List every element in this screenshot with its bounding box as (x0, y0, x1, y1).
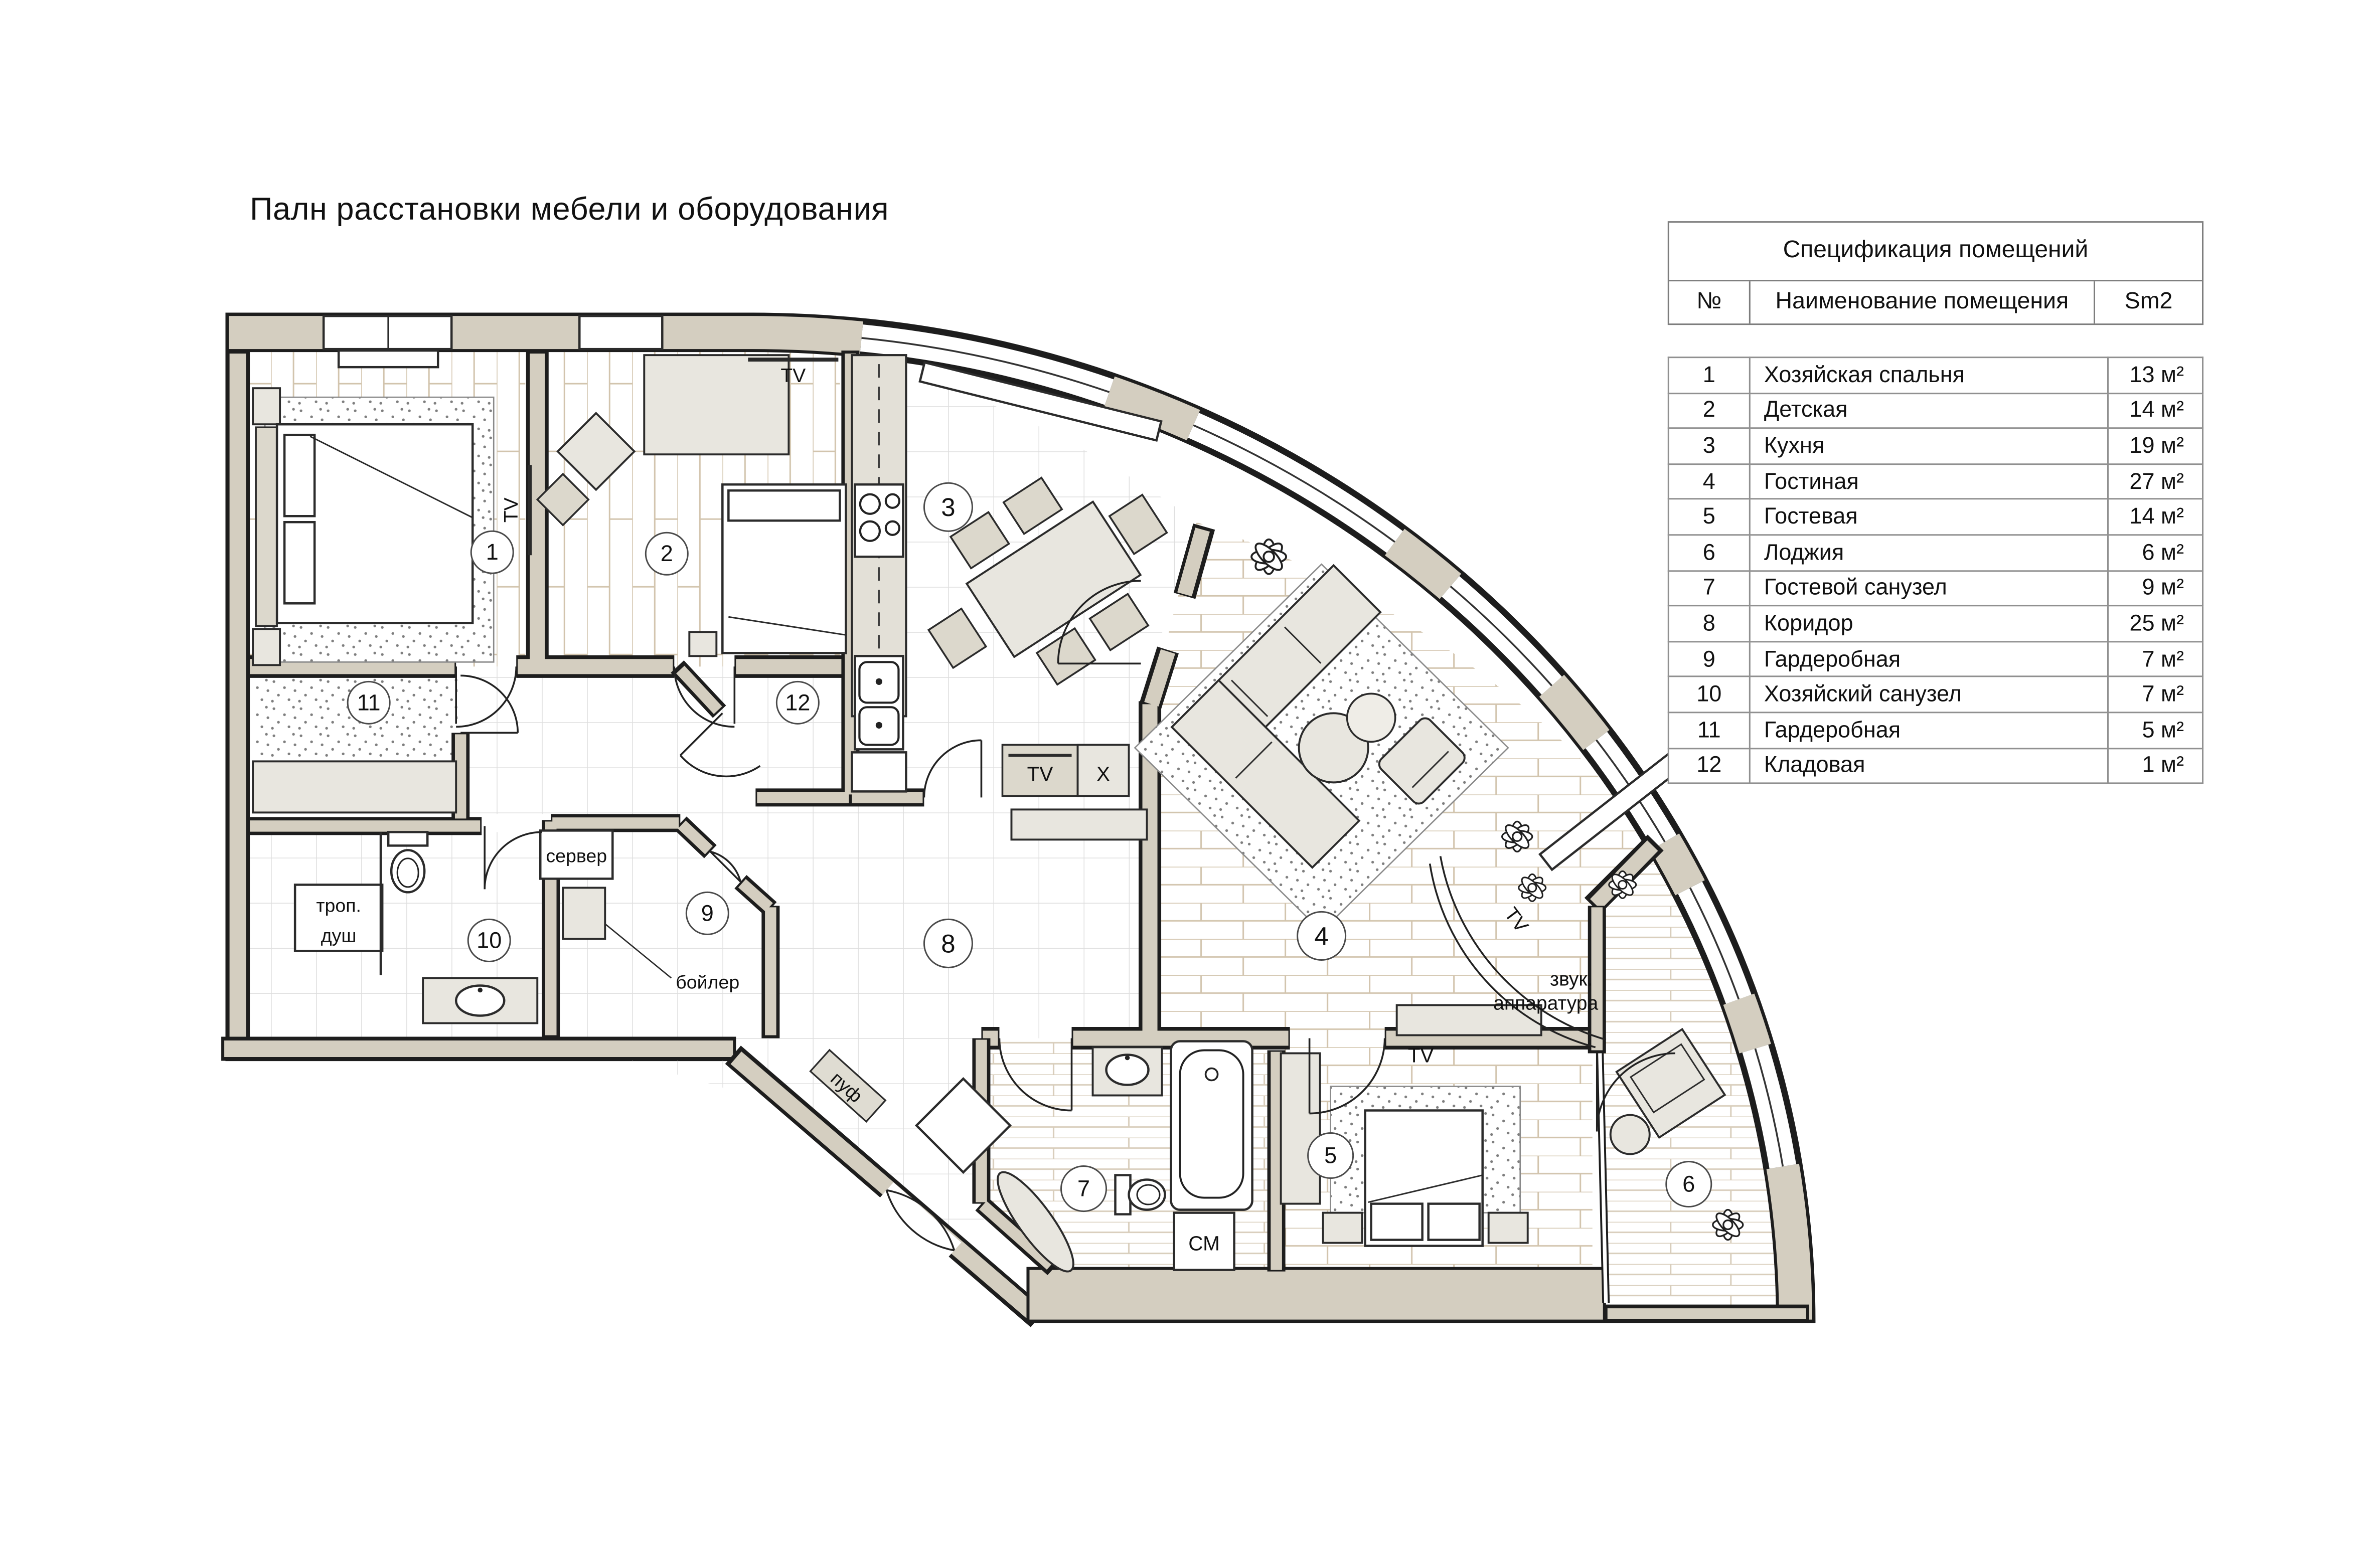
table-cell: Гардеробная (1750, 641, 2108, 677)
room-number-9: 9 (701, 900, 714, 926)
room-number-12: 12 (785, 689, 810, 715)
table-cell: Гардеробная (1750, 713, 2108, 748)
boiler-appliance (563, 888, 605, 939)
table-cell: Лоджия (1750, 535, 2108, 571)
table-row: 1Хозяйская спальня13 м² (1668, 358, 2202, 393)
room-number-6: 6 (1682, 1171, 1695, 1197)
table-cell: 11 (1668, 713, 1750, 748)
table-cell: 5 (1668, 499, 1750, 535)
table-row: 11Гардеробная5 м² (1668, 713, 2202, 748)
side-table (1611, 1115, 1650, 1154)
bathtub-icon (1171, 1041, 1252, 1209)
table-cell: 5 м² (2108, 713, 2202, 748)
room-number-8: 8 (941, 929, 955, 958)
table-row: 2Детская14 м² (1668, 393, 2202, 428)
pillow (728, 490, 840, 520)
label-tv-room5: TV (1408, 1043, 1434, 1067)
table-row: 5Гостевая14 м² (1668, 499, 2202, 535)
window-room2 (579, 316, 662, 349)
room-number-3: 3 (941, 493, 955, 521)
table-cell: 27 м² (2108, 464, 2202, 499)
table-cell: 10 (1668, 677, 1750, 713)
kitchen-sink-icon (855, 656, 903, 749)
plant-icon (1502, 821, 1532, 851)
bed-headboard (256, 427, 277, 626)
bed (722, 484, 846, 653)
room-number-5: 5 (1324, 1143, 1337, 1168)
table-cell: 25 м² (2108, 606, 2202, 641)
wardrobe (644, 355, 788, 454)
double-bed (1365, 1111, 1483, 1246)
label-tv-room1-icon: TV (501, 497, 522, 522)
plant-icon (1519, 874, 1546, 901)
spec-col-area: Sm2 (2095, 281, 2202, 323)
table-cell: 6 м² (2108, 535, 2202, 571)
table-cell: 8 (1668, 606, 1750, 641)
table-row: 7Гостевой санузел9 м² (1668, 570, 2202, 606)
table-cell: Детская (1750, 393, 2108, 428)
nightstand (689, 632, 716, 656)
plant-icon (1251, 540, 1286, 574)
vanity-sink-icon (423, 978, 537, 1023)
table-cell: 1 м² (2108, 748, 2202, 783)
radiator (339, 351, 438, 367)
washing-machine-icon: СМ (1174, 1213, 1234, 1270)
coffee-table (1347, 693, 1395, 742)
table-row: 6Лоджия6 м² (1668, 535, 2202, 571)
cabinet (253, 388, 280, 424)
room-number-1: 1 (486, 539, 499, 565)
label-washer: СМ (1188, 1232, 1220, 1255)
room-1-master-bedroom (253, 351, 494, 665)
table-cell: 7 м² (2108, 641, 2202, 677)
pillow (284, 435, 314, 516)
table-cell: 3 (1668, 428, 1750, 464)
cabinet (852, 752, 906, 791)
spec-table-title: Спецификация помещений (1669, 223, 2202, 280)
table-cell: Кухня (1750, 428, 2108, 464)
page: Палн расстановки мебели и оборудования (0, 0, 2366, 1568)
spec-col-num: № (1669, 281, 1749, 323)
label-server: сервер (546, 845, 607, 866)
room-number-10: 10 (477, 927, 502, 953)
label-shower-2: душ (321, 925, 357, 946)
table-cell: Гостевой санузел (1750, 570, 2108, 606)
table-row: 4Гостиная27 м² (1668, 464, 2202, 499)
table-row: 12Кладовая1 м² (1668, 748, 2202, 783)
table-row: 10Хозяйский санузел7 м² (1668, 677, 2202, 713)
room-number-7: 7 (1077, 1176, 1090, 1201)
label-boiler: бойлер (676, 971, 739, 992)
table-cell: Коридор (1750, 606, 2108, 641)
table-cell: Гостевая (1750, 499, 2108, 535)
nightstand (1489, 1213, 1528, 1243)
table-cell: 19 м² (2108, 428, 2202, 464)
double-bed (277, 424, 472, 623)
spec-table-header: Спецификация помещений № Наименование по… (1668, 221, 2203, 325)
table-cell: 1 (1668, 358, 1750, 393)
vanity-sink-icon (1093, 1047, 1162, 1095)
toilet-icon (388, 832, 427, 892)
table-cell: 12 (1668, 748, 1750, 783)
room-number-4: 4 (1314, 922, 1328, 950)
label-x-cabinet: X (1096, 762, 1110, 785)
wardrobe (1281, 1053, 1320, 1203)
bottom-wall (1028, 1269, 1604, 1321)
table-cell: Хозяйская спальня (1750, 358, 2108, 393)
table-cell: Хозяйский санузел (1750, 677, 2108, 713)
table-cell: 2 (1668, 393, 1750, 428)
table-row: 9Гардеробная7 м² (1668, 641, 2202, 677)
nightstand (1323, 1213, 1362, 1243)
cabinet (253, 629, 280, 665)
label-tv-room2-icon: TV (780, 365, 806, 387)
label-shower-1: троп. (316, 895, 361, 916)
table-row: 3Кухня19 м² (1668, 428, 2202, 464)
plant-icon (1609, 871, 1636, 898)
table-cell: 9 м² (2108, 570, 2202, 606)
table-cell: 14 м² (2108, 499, 2202, 535)
table-cell: 6 (1668, 535, 1750, 571)
table-cell: 14 м² (2108, 393, 2202, 428)
spec-table-rows: 1Хозяйская спальня13 м²2Детская14 м²3Кух… (1668, 357, 2203, 784)
room-number-11: 11 (357, 689, 381, 715)
stove-icon (855, 484, 903, 557)
table-cell: 13 м² (2108, 358, 2202, 393)
table-row: 8Коридор25 м² (1668, 606, 2202, 641)
label-audio-1: звук. (1550, 968, 1593, 990)
table-cell: 7 (1668, 570, 1750, 606)
label-tv-cabinet: TV (1027, 762, 1053, 785)
pillow (284, 522, 314, 603)
table-cell: 4 (1668, 464, 1750, 499)
table-cell: Кладовая (1750, 748, 2108, 783)
room-11-cabinet (253, 761, 456, 812)
table-cell: Гостиная (1750, 464, 2108, 499)
label-audio-2: аппаратура (1493, 992, 1598, 1014)
pillow (1371, 1204, 1423, 1240)
spec-col-name: Наименование помещения (1749, 281, 2095, 323)
plant-icon (1713, 1210, 1743, 1240)
sideboard (1011, 809, 1147, 839)
room-number-2: 2 (661, 541, 673, 566)
table-cell: 9 (1668, 641, 1750, 677)
table-cell: 7 м² (2108, 677, 2202, 713)
spec-table: Спецификация помещений № Наименование по… (1668, 221, 2203, 784)
pillow (1429, 1204, 1480, 1240)
